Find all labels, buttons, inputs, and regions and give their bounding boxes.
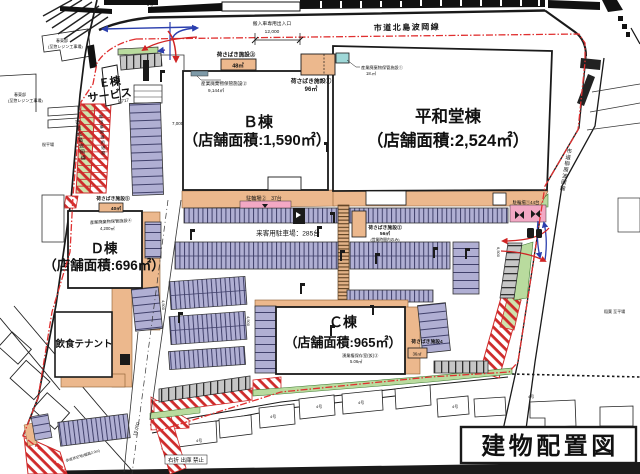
svg-text:（店舗面積:2,524㎡）: （店舗面積:2,524㎡）: [367, 130, 529, 150]
svg-text:Ｂ棟: Ｂ棟: [243, 113, 274, 131]
svg-text:4,200㎡: 4,200㎡: [100, 225, 115, 231]
svg-text:40㎡: 40㎡: [111, 205, 121, 212]
svg-text:Ｄ棟: Ｄ棟: [91, 240, 118, 256]
svg-text:36㎡: 36㎡: [413, 351, 423, 357]
svg-text:（店舗面積:1,590㎡）: （店舗面積:1,590㎡）: [183, 131, 331, 149]
svg-text:4号: 4号: [270, 413, 276, 419]
svg-text:春東部: 春東部: [56, 37, 68, 43]
svg-text:4号: 4号: [316, 403, 322, 409]
svg-text:産業廃棄物保管施設①: 産業廃棄物保管施設①: [361, 64, 404, 71]
svg-text:駐輪場② 37台: 駐輪場② 37台: [246, 195, 282, 202]
svg-text:12,000: 12,000: [265, 29, 280, 35]
svg-text:56㎡: 56㎡: [380, 230, 390, 237]
svg-text:湧業権保存室(仮)③: 湧業権保存室(仮)③: [342, 352, 379, 359]
svg-text:(至惣レジン工事場): (至惣レジン工事場): [8, 97, 43, 103]
svg-text:4号: 4号: [358, 399, 364, 405]
svg-text:搬入車専用出入口: 搬入車専用出入口: [253, 20, 292, 27]
svg-text:6号: 6号: [147, 1, 153, 7]
svg-text:平和堂棟: 平和堂棟: [415, 106, 482, 126]
svg-text:96㎡: 96㎡: [305, 85, 318, 93]
svg-text:（店舗面積:965㎡）: （店舗面積:965㎡）: [284, 335, 401, 350]
svg-text:建物配置図: 建物配置図: [481, 433, 619, 460]
svg-text:荷さばき施設4: 荷さばき施設4: [410, 338, 443, 345]
svg-text:4,500: 4,500: [246, 316, 251, 327]
svg-text:7,000: 7,000: [172, 121, 184, 126]
svg-text:桜平場: 桜平場: [42, 141, 54, 147]
svg-text:荷さばき施設⑤: 荷さばき施設⑤: [95, 195, 130, 202]
svg-text:荷さばき施設③: 荷さばき施設③: [216, 51, 256, 59]
svg-text:市道北島波岡線: 市道北島波岡線: [374, 21, 441, 32]
svg-text:（店舗面積:696㎡）: （店舗面積:696㎡）: [43, 257, 165, 273]
svg-text:飲食テナント: 飲食テナント: [54, 338, 112, 350]
svg-text:5.06㎡: 5.06㎡: [350, 358, 363, 364]
svg-text:稲葉 至平場: 稲葉 至平場: [604, 308, 625, 314]
svg-text:(至惣レジン工事場): (至惣レジン工事場): [48, 43, 83, 49]
svg-text:18.㎡: 18.㎡: [366, 70, 377, 76]
svg-text:右折 出庫 禁止: 右折 出庫 禁止: [168, 456, 205, 464]
svg-text:来客用駐車場：285台: 来客用駐車場：285台: [256, 229, 320, 238]
svg-text:6,500: 6,500: [496, 247, 501, 258]
svg-text:荷さばき施設①: 荷さばき施設①: [290, 77, 332, 85]
svg-text:4号: 4号: [528, 393, 534, 399]
svg-text:9,144㎡: 9,144㎡: [208, 87, 224, 93]
svg-text:48㎡: 48㎡: [232, 62, 244, 70]
svg-text:春東部: 春東部: [14, 91, 26, 97]
svg-text:4号: 4号: [196, 437, 202, 443]
svg-text:(営業時間内のみ): (営業時間内のみ): [370, 237, 400, 242]
svg-text:産業廃棄物保管施設②: 産業廃棄物保管施設②: [201, 80, 247, 87]
svg-text:駐輪場①44台: 駐輪場①44台: [513, 199, 540, 206]
svg-text:荷さばき施設②: 荷さばき施設②: [367, 224, 402, 231]
svg-text:4号: 4号: [452, 403, 458, 409]
